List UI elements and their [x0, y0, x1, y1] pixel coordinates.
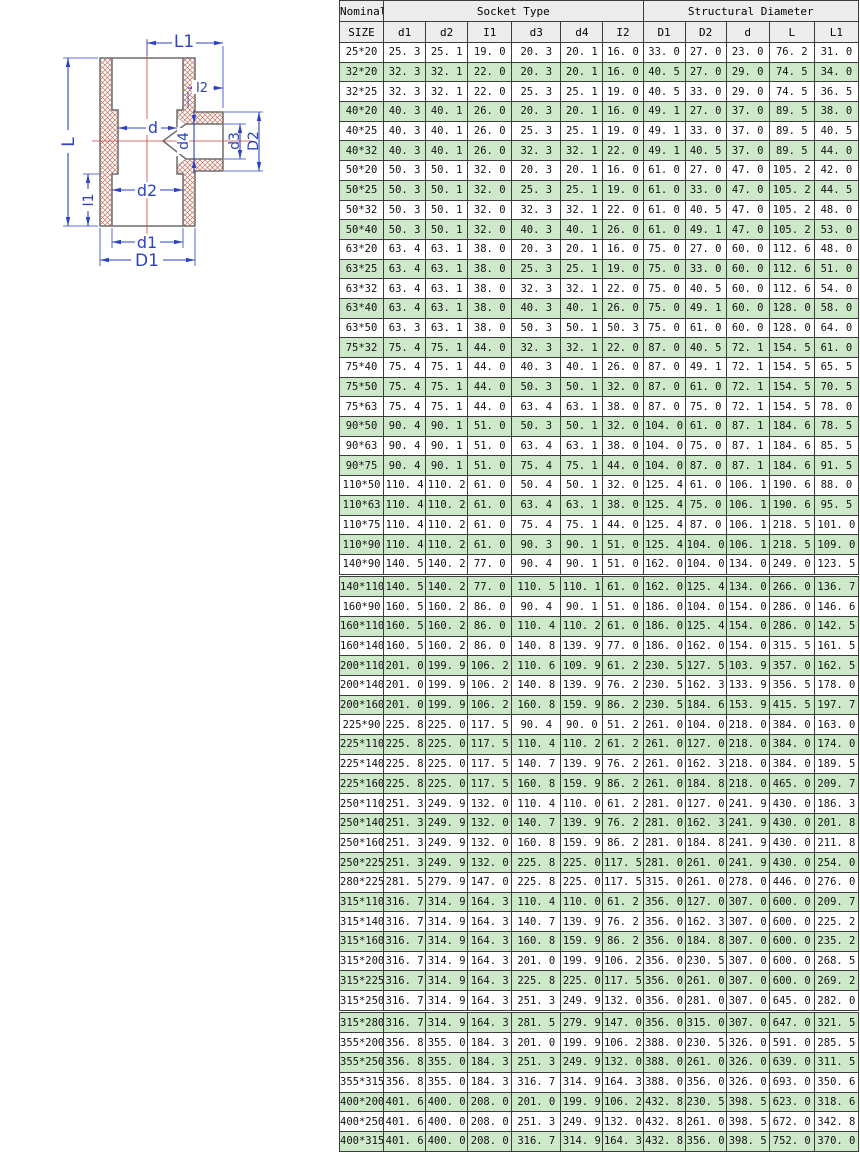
value-cell: 110. 2	[561, 735, 603, 755]
value-cell: 20. 1	[561, 62, 603, 82]
value-cell: 22. 0	[603, 200, 643, 220]
value-cell: 51. 0	[603, 535, 643, 555]
table-row: 400*250401. 6400. 0208. 0251. 3249. 9132…	[340, 1112, 859, 1132]
value-cell: 19. 0	[603, 121, 643, 141]
value-cell: 26. 0	[603, 220, 643, 240]
value-cell: 76. 2	[603, 754, 643, 774]
size-cell: 140*90	[340, 554, 384, 575]
value-cell: 50. 3	[512, 417, 561, 437]
value-cell: 251. 3	[384, 853, 426, 873]
value-cell: 154. 0	[726, 616, 769, 636]
value-cell: 251. 3	[384, 813, 426, 833]
table-row: 90*7590. 490. 151. 075. 475. 144. 0104. …	[340, 456, 859, 476]
value-cell: 32. 3	[512, 200, 561, 220]
value-cell: 235. 2	[814, 931, 858, 951]
value-cell: 50. 3	[512, 377, 561, 397]
table-body: 25*2025. 325. 119. 020. 320. 116. 033. 0…	[340, 43, 859, 1152]
value-cell: 20. 3	[512, 239, 561, 259]
value-cell: 64. 0	[814, 318, 858, 338]
value-cell: 314. 9	[426, 1012, 468, 1033]
value-cell: 40. 5	[685, 338, 726, 358]
value-cell: 128. 0	[769, 318, 814, 338]
value-cell: 117. 5	[468, 715, 512, 735]
value-cell: 90. 0	[561, 715, 603, 735]
value-cell: 75. 1	[426, 358, 468, 378]
value-cell: 251. 3	[512, 991, 561, 1012]
value-cell: 218. 0	[726, 735, 769, 755]
size-cell: 315*280	[340, 1012, 384, 1033]
table-row: 315*280316. 7314. 9164. 3281. 5279. 9147…	[340, 1012, 859, 1033]
value-cell: 139. 9	[561, 754, 603, 774]
size-cell: 225*140	[340, 754, 384, 774]
size-cell: 225*110	[340, 735, 384, 755]
size-cell: 200*110	[340, 656, 384, 676]
value-cell: 54. 0	[814, 279, 858, 299]
size-cell: 63*32	[340, 279, 384, 299]
value-cell: 356. 0	[643, 991, 685, 1012]
size-cell: 110*50	[340, 476, 384, 496]
value-cell: 61. 2	[603, 892, 643, 912]
value-cell: 33. 0	[685, 121, 726, 141]
value-cell: 75. 4	[512, 515, 561, 535]
value-cell: 22. 0	[603, 279, 643, 299]
size-cell: 400*200	[340, 1092, 384, 1112]
value-cell: 161. 5	[814, 636, 858, 656]
value-cell: 261. 0	[685, 872, 726, 892]
table-row: 40*2540. 340. 126. 025. 325. 119. 049. 1…	[340, 121, 859, 141]
table-row: 50*4050. 350. 132. 040. 340. 126. 061. 0…	[340, 220, 859, 240]
value-cell: 33. 0	[685, 259, 726, 279]
table-row: 140*90140. 5140. 277. 090. 490. 151. 016…	[340, 554, 859, 575]
value-cell: 356. 0	[685, 1131, 726, 1151]
value-cell: 110. 0	[561, 892, 603, 912]
value-cell: 63. 4	[512, 397, 561, 417]
table-row: 250*225251. 3249. 9132. 0225. 8225. 0117…	[340, 853, 859, 873]
table-row: 63*2563. 463. 138. 025. 325. 119. 075. 0…	[340, 259, 859, 279]
socket-type-header: Socket Type	[384, 1, 643, 22]
value-cell: 164. 3	[603, 1072, 643, 1092]
value-cell: 154. 0	[726, 636, 769, 656]
table-row: 110*75110. 4110. 261. 075. 475. 144. 012…	[340, 515, 859, 535]
size-cell: 315*110	[340, 892, 384, 912]
table-row: 315*225316. 7314. 9164. 3225. 8225. 0117…	[340, 971, 859, 991]
value-cell: 249. 9	[561, 1112, 603, 1132]
value-cell: 38. 0	[468, 259, 512, 279]
value-cell: 241. 9	[726, 794, 769, 814]
value-cell: 110. 4	[512, 735, 561, 755]
value-cell: 104. 0	[643, 456, 685, 476]
table-row: 40*3240. 340. 126. 032. 332. 122. 049. 1…	[340, 141, 859, 161]
value-cell: 314. 9	[426, 971, 468, 991]
table-row: 63*3263. 463. 138. 032. 332. 122. 075. 0…	[340, 279, 859, 299]
value-cell: 318. 6	[814, 1092, 858, 1112]
value-cell: 230. 5	[685, 1033, 726, 1053]
size-cell: 250*160	[340, 833, 384, 853]
value-cell: 16. 0	[603, 161, 643, 181]
value-cell: 400. 0	[426, 1092, 468, 1112]
value-cell: 199. 9	[426, 676, 468, 696]
value-cell: 22. 0	[468, 82, 512, 102]
size-cell: 315*160	[340, 931, 384, 951]
value-cell: 279. 9	[426, 872, 468, 892]
value-cell: 218. 0	[726, 774, 769, 794]
value-cell: 50. 1	[561, 417, 603, 437]
value-cell: 32. 0	[603, 377, 643, 397]
value-cell: 134. 0	[726, 554, 769, 575]
dimension-d2: d2	[112, 181, 183, 200]
value-cell: 90. 4	[512, 554, 561, 575]
value-cell: 105. 2	[769, 200, 814, 220]
value-cell: 110. 2	[426, 515, 468, 535]
value-cell: 110. 4	[512, 892, 561, 912]
value-cell: 87. 0	[643, 358, 685, 378]
value-cell: 398. 5	[726, 1112, 769, 1132]
value-cell: 61. 2	[603, 656, 643, 676]
size-cell: 315*250	[340, 991, 384, 1012]
value-cell: 74. 5	[769, 62, 814, 82]
value-cell: 44. 0	[468, 358, 512, 378]
value-cell: 201. 0	[512, 1092, 561, 1112]
value-cell: 314. 9	[426, 951, 468, 971]
label-L: L	[59, 137, 79, 147]
value-cell: 139. 9	[561, 912, 603, 932]
value-cell: 125. 4	[643, 476, 685, 496]
table-row: 355*250356. 8355. 0184. 3251. 3249. 9132…	[340, 1053, 859, 1073]
value-cell: 225. 0	[426, 735, 468, 755]
value-cell: 75. 4	[384, 397, 426, 417]
value-cell: 53. 0	[814, 220, 858, 240]
value-cell: 201. 8	[814, 813, 858, 833]
table-row: 63*5063. 363. 138. 050. 350. 150. 375. 0…	[340, 318, 859, 338]
value-cell: 32. 0	[468, 180, 512, 200]
value-cell: 315. 5	[769, 636, 814, 656]
value-cell: 40. 5	[685, 141, 726, 161]
value-cell: 40. 5	[685, 279, 726, 299]
value-cell: 261. 0	[643, 754, 685, 774]
value-cell: 225. 8	[384, 774, 426, 794]
table-row: 160*110160. 5160. 286. 0110. 4110. 261. …	[340, 616, 859, 636]
value-cell: 199. 9	[426, 695, 468, 715]
value-cell: 76. 2	[603, 912, 643, 932]
value-cell: 86. 0	[468, 636, 512, 656]
value-cell: 356. 0	[643, 931, 685, 951]
value-cell: 261. 0	[643, 735, 685, 755]
table-row: 225*140225. 8225. 0117. 5140. 7139. 976.…	[340, 754, 859, 774]
table-row: 225*110225. 8225. 0117. 5110. 4110. 261.…	[340, 735, 859, 755]
value-cell: 117. 5	[468, 774, 512, 794]
size-cell: 160*90	[340, 597, 384, 617]
value-cell: 110. 4	[384, 495, 426, 515]
size-cell: 90*75	[340, 456, 384, 476]
value-cell: 160. 8	[512, 774, 561, 794]
value-cell: 261. 0	[685, 971, 726, 991]
value-cell: 600. 0	[769, 912, 814, 932]
value-cell: 112. 6	[769, 239, 814, 259]
value-cell: 186. 0	[643, 636, 685, 656]
value-cell: 78. 0	[814, 397, 858, 417]
value-cell: 105. 2	[769, 161, 814, 181]
value-cell: 36. 5	[814, 82, 858, 102]
value-cell: 218. 5	[769, 535, 814, 555]
value-cell: 40. 3	[512, 358, 561, 378]
value-cell: 249. 9	[561, 1053, 603, 1073]
size-cell: 63*20	[340, 239, 384, 259]
size-cell: 75*50	[340, 377, 384, 397]
size-cell: 110*75	[340, 515, 384, 535]
label-d4: d4	[176, 132, 192, 150]
value-cell: 140. 8	[512, 676, 561, 696]
value-cell: 25. 1	[561, 82, 603, 102]
value-cell: 61. 0	[468, 515, 512, 535]
value-cell: 90. 4	[384, 456, 426, 476]
value-cell: 356. 5	[769, 676, 814, 696]
column-header: I1	[468, 22, 512, 43]
value-cell: 356. 8	[384, 1053, 426, 1073]
table-row: 250*140251. 3249. 9132. 0140. 7139. 976.…	[340, 813, 859, 833]
value-cell: 230. 5	[643, 656, 685, 676]
value-cell: 22. 0	[603, 338, 643, 358]
value-cell: 184. 8	[685, 774, 726, 794]
value-cell: 44. 0	[814, 141, 858, 161]
subheader-row: SIZE d1d2I1d3d4I2D1D2dLL1	[340, 22, 859, 43]
value-cell: 154. 5	[769, 377, 814, 397]
table-row: 50*2550. 350. 132. 025. 325. 119. 061. 0…	[340, 180, 859, 200]
value-cell: 47. 0	[726, 220, 769, 240]
value-cell: 154. 5	[769, 338, 814, 358]
value-cell: 63. 4	[512, 495, 561, 515]
value-cell: 48. 0	[814, 200, 858, 220]
value-cell: 50. 4	[512, 476, 561, 496]
value-cell: 400. 0	[426, 1112, 468, 1132]
value-cell: 316. 7	[384, 1012, 426, 1033]
value-cell: 51. 0	[814, 259, 858, 279]
value-cell: 314. 9	[426, 892, 468, 912]
value-cell: 139. 9	[561, 636, 603, 656]
value-cell: 225. 0	[426, 715, 468, 735]
table-row: 110*90110. 4110. 261. 090. 390. 151. 012…	[340, 535, 859, 555]
value-cell: 38. 0	[603, 495, 643, 515]
value-cell: 251. 3	[384, 794, 426, 814]
value-cell: 139. 9	[561, 676, 603, 696]
value-cell: 125. 4	[685, 576, 726, 597]
value-cell: 90. 1	[561, 597, 603, 617]
value-cell: 61. 0	[643, 200, 685, 220]
value-cell: 125. 4	[643, 535, 685, 555]
value-cell: 50. 1	[561, 476, 603, 496]
value-cell: 136. 7	[814, 576, 858, 597]
value-cell: 164. 3	[468, 912, 512, 932]
value-cell: 276. 0	[814, 872, 858, 892]
label-I1: I1	[81, 193, 97, 206]
value-cell: 63. 1	[561, 436, 603, 456]
value-cell: 32. 3	[512, 338, 561, 358]
table-row: 200*160201. 0199. 9106. 2160. 8159. 986.…	[340, 695, 859, 715]
table-row: 250*110251. 3249. 9132. 0110. 4110. 061.…	[340, 794, 859, 814]
value-cell: 25. 3	[512, 180, 561, 200]
value-cell: 261. 0	[685, 853, 726, 873]
table-row: 110*50110. 4110. 261. 050. 450. 132. 012…	[340, 476, 859, 496]
size-cell: 50*20	[340, 161, 384, 181]
value-cell: 75. 1	[426, 377, 468, 397]
value-cell: 29. 0	[726, 62, 769, 82]
value-cell: 61. 0	[814, 338, 858, 358]
value-cell: 134. 0	[726, 576, 769, 597]
size-cell: 160*110	[340, 616, 384, 636]
value-cell: 61. 0	[643, 180, 685, 200]
value-cell: 26. 0	[468, 121, 512, 141]
value-cell: 63. 4	[512, 436, 561, 456]
value-cell: 38. 0	[468, 298, 512, 318]
size-cell: 400*250	[340, 1112, 384, 1132]
value-cell: 26. 0	[468, 141, 512, 161]
value-cell: 61. 0	[643, 220, 685, 240]
size-cell: 400*315	[340, 1131, 384, 1151]
value-cell: 225. 8	[384, 715, 426, 735]
value-cell: 279. 9	[561, 1012, 603, 1033]
value-cell: 600. 0	[769, 931, 814, 951]
value-cell: 33. 0	[685, 82, 726, 102]
value-cell: 225. 0	[561, 872, 603, 892]
value-cell: 281. 5	[512, 1012, 561, 1033]
value-cell: 90. 3	[512, 535, 561, 555]
value-cell: 20. 1	[561, 43, 603, 63]
value-cell: 63. 1	[561, 397, 603, 417]
value-cell: 132. 0	[603, 1112, 643, 1132]
value-cell: 251. 3	[512, 1112, 561, 1132]
value-cell: 230. 5	[643, 676, 685, 696]
value-cell: 40. 5	[643, 82, 685, 102]
value-cell: 106. 1	[726, 495, 769, 515]
value-cell: 63. 1	[426, 279, 468, 299]
value-cell: 44. 0	[468, 338, 512, 358]
value-cell: 32. 0	[468, 220, 512, 240]
value-cell: 61. 0	[468, 535, 512, 555]
table-row: 315*200316. 7314. 9164. 3201. 0199. 9106…	[340, 951, 859, 971]
value-cell: 254. 0	[814, 853, 858, 873]
table-row: 200*140201. 0199. 9106. 2140. 8139. 976.…	[340, 676, 859, 696]
value-cell: 209. 7	[814, 774, 858, 794]
label-D1: D1	[135, 251, 159, 271]
size-cell: 63*40	[340, 298, 384, 318]
size-cell: 63*50	[340, 318, 384, 338]
value-cell: 269. 2	[814, 971, 858, 991]
value-cell: 208. 0	[468, 1092, 512, 1112]
structural-diameter-header: Structural Diameter	[643, 1, 858, 22]
value-cell: 75. 4	[384, 377, 426, 397]
value-cell: 34. 0	[814, 62, 858, 82]
value-cell: 25. 1	[561, 259, 603, 279]
value-cell: 60. 0	[726, 259, 769, 279]
value-cell: 645. 0	[769, 991, 814, 1012]
value-cell: 49. 1	[643, 102, 685, 122]
value-cell: 72. 1	[726, 377, 769, 397]
value-cell: 201. 0	[512, 1033, 561, 1053]
value-cell: 125. 4	[685, 616, 726, 636]
table-row: 110*63110. 4110. 261. 063. 463. 138. 012…	[340, 495, 859, 515]
value-cell: 164. 3	[468, 892, 512, 912]
value-cell: 25. 3	[512, 259, 561, 279]
value-cell: 110. 1	[561, 576, 603, 597]
value-cell: 60. 0	[726, 279, 769, 299]
tee-fitting-diagram: L1 I2 d d4 d3 D2 L	[0, 0, 339, 300]
value-cell: 27. 0	[685, 102, 726, 122]
value-cell: 104. 0	[685, 715, 726, 735]
size-cell: 32*20	[340, 62, 384, 82]
table-row: 225*90225. 8225. 0117. 590. 490. 051. 22…	[340, 715, 859, 735]
table-row: 90*6390. 490. 151. 063. 463. 138. 0104. …	[340, 436, 859, 456]
value-cell: 38. 0	[468, 318, 512, 338]
value-cell: 281. 0	[643, 833, 685, 853]
table-row: 63*4063. 463. 138. 040. 340. 126. 075. 0…	[340, 298, 859, 318]
value-cell: 75. 0	[685, 436, 726, 456]
value-cell: 40. 5	[814, 121, 858, 141]
value-cell: 199. 9	[561, 951, 603, 971]
value-cell: 20. 1	[561, 161, 603, 181]
value-cell: 190. 6	[769, 476, 814, 496]
size-cell: 315*140	[340, 912, 384, 932]
value-cell: 356. 8	[384, 1033, 426, 1053]
value-cell: 163. 0	[814, 715, 858, 735]
value-cell: 164. 3	[468, 971, 512, 991]
value-cell: 87. 0	[643, 338, 685, 358]
value-cell: 218. 0	[726, 754, 769, 774]
value-cell: 178. 0	[814, 676, 858, 696]
table-row: 400*315401. 6400. 0208. 0316. 7314. 9164…	[340, 1131, 859, 1151]
size-cell: 250*225	[340, 853, 384, 873]
value-cell: 162. 3	[685, 676, 726, 696]
table-row: 50*2050. 350. 132. 020. 320. 116. 061. 0…	[340, 161, 859, 181]
value-cell: 117. 5	[468, 735, 512, 755]
value-cell: 76. 2	[769, 43, 814, 63]
value-cell: 40. 1	[426, 102, 468, 122]
value-cell: 16. 0	[603, 62, 643, 82]
table-row: 40*2040. 340. 126. 020. 320. 116. 049. 1…	[340, 102, 859, 122]
value-cell: 281. 0	[643, 853, 685, 873]
table-row: 32*2032. 332. 122. 020. 320. 116. 040. 5…	[340, 62, 859, 82]
value-cell: 384. 0	[769, 715, 814, 735]
value-cell: 33. 0	[685, 180, 726, 200]
value-cell: 26. 0	[603, 298, 643, 318]
value-cell: 47. 0	[726, 161, 769, 181]
value-cell: 230. 5	[643, 695, 685, 715]
value-cell: 132. 0	[603, 991, 643, 1012]
value-cell: 465. 0	[769, 774, 814, 794]
value-cell: 16. 0	[603, 43, 643, 63]
value-cell: 20. 3	[512, 62, 561, 82]
value-cell: 140. 2	[426, 576, 468, 597]
column-header: D1	[643, 22, 685, 43]
value-cell: 110. 2	[426, 535, 468, 555]
value-cell: 146. 6	[814, 597, 858, 617]
value-cell: 87. 0	[643, 377, 685, 397]
value-cell: 76. 2	[603, 676, 643, 696]
value-cell: 316. 7	[384, 931, 426, 951]
value-cell: 104. 0	[685, 597, 726, 617]
value-cell: 249. 9	[426, 833, 468, 853]
value-cell: 48. 0	[814, 239, 858, 259]
value-cell: 44. 0	[603, 515, 643, 535]
value-cell: 164. 3	[468, 931, 512, 951]
table-row: 355*315356. 8355. 0184. 3316. 7314. 9164…	[340, 1072, 859, 1092]
size-cell: 90*50	[340, 417, 384, 437]
value-cell: 75. 4	[384, 338, 426, 358]
value-cell: 401. 6	[384, 1092, 426, 1112]
value-cell: 201. 0	[384, 695, 426, 715]
value-cell: 153. 9	[726, 695, 769, 715]
table-row: 315*250316. 7314. 9164. 3251. 3249. 9132…	[340, 991, 859, 1012]
value-cell: 398. 5	[726, 1092, 769, 1112]
value-cell: 162. 0	[643, 554, 685, 575]
